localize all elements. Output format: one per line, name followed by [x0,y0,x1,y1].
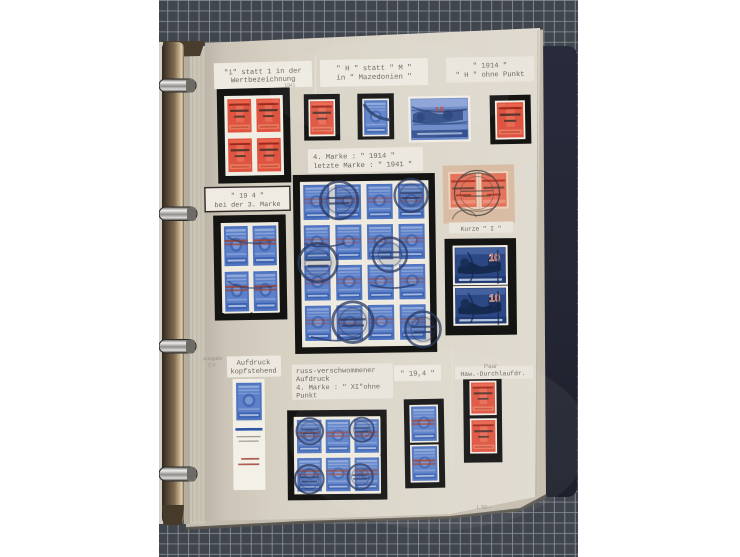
svg-text:Aufdruck: Aufdruck [237,359,271,368]
svg-text:Kurze " I ": Kurze " I " [461,225,502,233]
svg-text:kopfstehend: kopfstehend [230,368,276,377]
svg-text:Ausgabe: Ausgabe [203,356,223,363]
svg-text:" 19 4 ": " 19 4 " [231,192,264,201]
svg-text:2.V.: 2.V. [208,362,217,368]
svg-text:bei der 3. Marke: bei der 3. Marke [214,201,280,210]
